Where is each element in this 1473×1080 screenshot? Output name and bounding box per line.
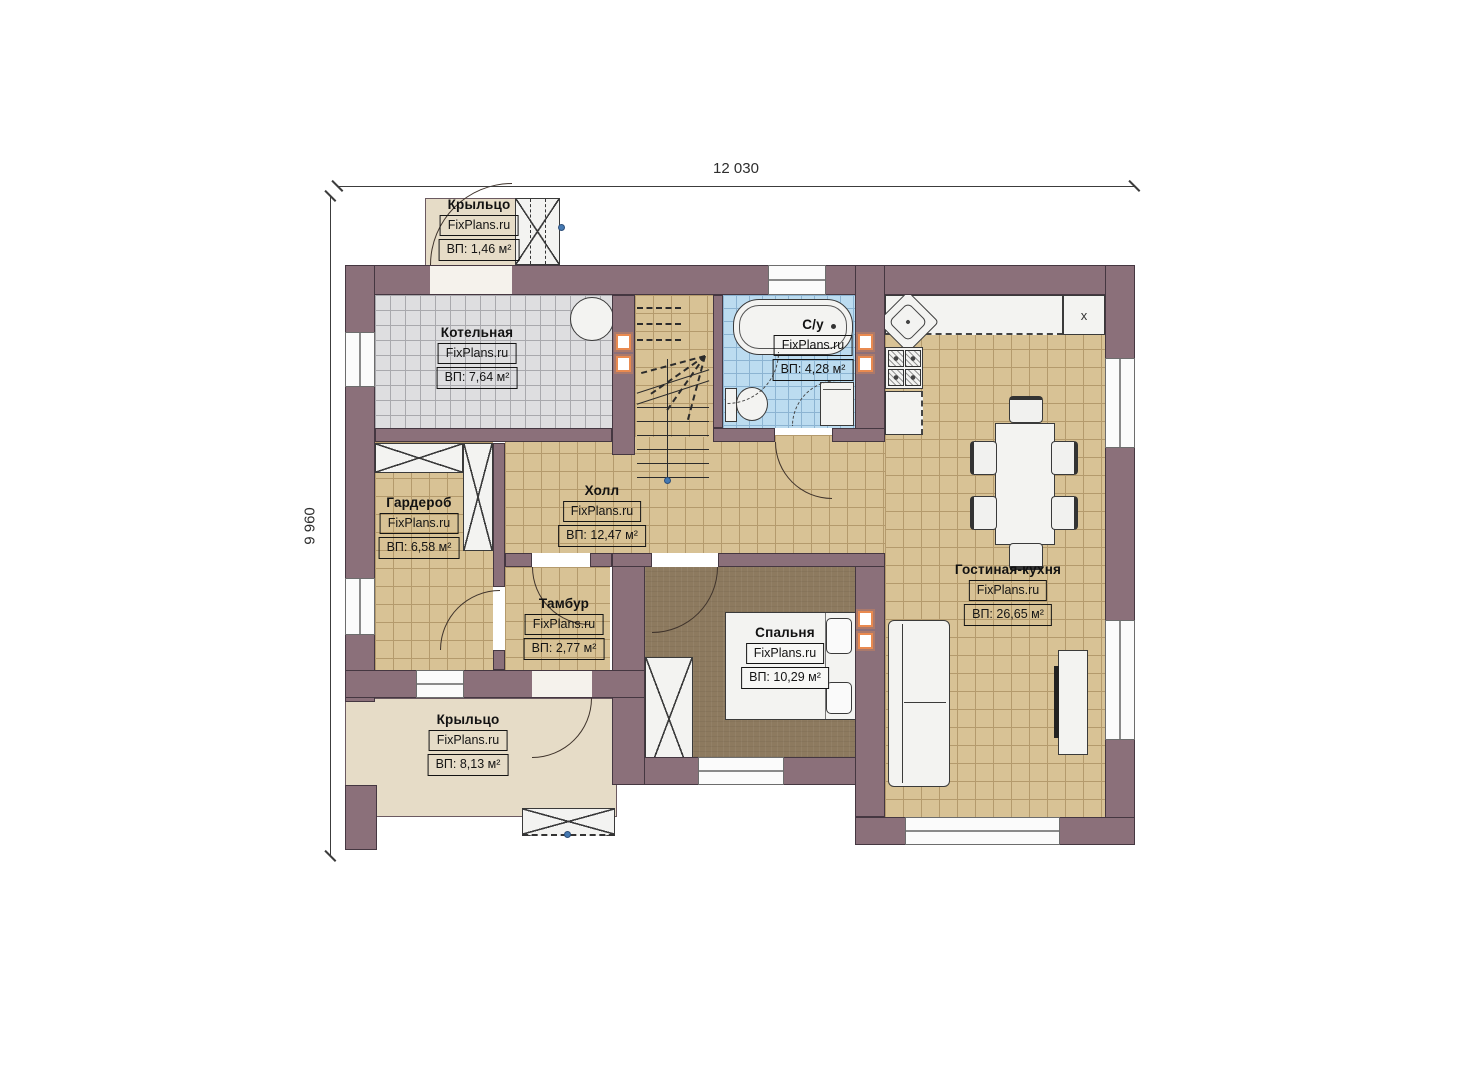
wall (612, 553, 652, 567)
wardrobe-cabinet (463, 443, 493, 551)
wardrobe-cabinet (375, 443, 463, 473)
room-label-boiler: Котельная FixPlans.ru ВП: 7,64 м² (437, 325, 518, 389)
wall (345, 265, 375, 702)
area-box: ВП: 10,29 м² (741, 667, 829, 688)
dining-table (995, 423, 1055, 545)
room-name: С/у (802, 317, 824, 332)
wall (713, 428, 775, 442)
window (905, 817, 1060, 845)
wall (612, 295, 635, 455)
watermark-box: FixPlans.ru (438, 343, 517, 364)
vent (616, 356, 631, 372)
watermark-box: FixPlans.ru (380, 513, 459, 534)
tv-stand (1058, 650, 1088, 755)
window (1105, 358, 1135, 448)
chair (1051, 441, 1078, 475)
watermark-box: FixPlans.ru (440, 215, 519, 236)
watermark-box: FixPlans.ru (969, 580, 1048, 601)
fridge: x (1063, 295, 1105, 335)
wall (612, 553, 645, 785)
boiler (570, 297, 614, 341)
wall (590, 553, 612, 567)
wall (493, 650, 505, 670)
stove (885, 347, 923, 389)
area-box: ВП: 8,13 м² (428, 754, 509, 775)
area-box: ВП: 26,65 м² (964, 604, 1052, 625)
vent (858, 334, 873, 350)
window (768, 265, 826, 295)
area-box: ВП: 7,64 м² (437, 367, 518, 388)
kitchen-counter-side (885, 391, 923, 435)
room-label-bedroom: Спальня FixPlans.ru ВП: 10,29 м² (741, 625, 829, 689)
watermark-box: FixPlans.ru (525, 614, 604, 635)
watermark-box: FixPlans.ru (563, 501, 642, 522)
door-opening (532, 671, 592, 697)
porch-top-steps (515, 198, 560, 265)
area-box: ВП: 6,58 м² (379, 537, 460, 558)
stair-marker-dot (664, 477, 671, 484)
vent (858, 611, 873, 627)
wall (832, 428, 885, 442)
dimension-left: 9 960 (300, 196, 334, 856)
chair (1051, 496, 1078, 530)
watermark-box: FixPlans.ru (774, 335, 853, 356)
vent (616, 334, 631, 350)
room-label-porch-bottom: Крыльцо FixPlans.ru ВП: 8,13 м² (428, 712, 509, 776)
watermark-box: FixPlans.ru (429, 730, 508, 751)
pillow (826, 682, 852, 714)
window (698, 757, 784, 785)
area-box: ВП: 12,47 м² (558, 525, 646, 546)
area-box: ВП: 2,77 м² (524, 638, 605, 659)
room-label-hall: Холл FixPlans.ru ВП: 12,47 м² (558, 483, 646, 547)
marker-dot (558, 224, 565, 231)
chair (1009, 396, 1043, 423)
wall (345, 670, 645, 698)
wall (713, 295, 723, 428)
vent (858, 356, 873, 372)
room-label-porch-top: Крыльцо FixPlans.ru ВП: 1,46 м² (439, 197, 520, 261)
sofa (888, 620, 950, 787)
wall (855, 265, 885, 442)
room-name: Холл (585, 483, 620, 498)
pillow (826, 618, 852, 654)
window (1105, 620, 1135, 740)
floor-plan: x (0, 0, 1473, 1080)
room-name: Гостиная-кухня (955, 562, 1061, 577)
dimension-label-width: 12 030 (713, 160, 759, 177)
room-name: Тамбур (539, 596, 589, 611)
room-name: Спальня (755, 625, 815, 640)
wall (855, 553, 885, 817)
dimension-top: 12 030 (337, 160, 1135, 190)
door-opening (430, 266, 512, 294)
chair (970, 441, 997, 475)
wall (718, 553, 885, 567)
watermark-box: FixPlans.ru (746, 643, 825, 664)
stairs (635, 295, 713, 490)
dimension-label-height: 9 960 (301, 507, 318, 545)
window (345, 578, 375, 635)
chair (970, 496, 997, 530)
wall (375, 428, 612, 442)
room-label-tambur: Тамбур FixPlans.ru ВП: 2,77 м² (524, 596, 605, 660)
vent (858, 633, 873, 649)
tv (1054, 666, 1059, 738)
window (345, 332, 375, 387)
wall (493, 443, 505, 587)
marker-dot (564, 831, 571, 838)
room-label-wardrobe: Гардероб FixPlans.ru ВП: 6,58 м² (379, 495, 460, 559)
room-label-living: Гостиная-кухня FixPlans.ru ВП: 26,65 м² (955, 562, 1061, 626)
fridge-marker: x (1081, 308, 1088, 323)
room-name: Крыльцо (437, 712, 500, 727)
room-label-bathroom: С/у FixPlans.ru ВП: 4,28 м² (773, 317, 854, 381)
area-box: ВП: 4,28 м² (773, 359, 854, 380)
wall (1105, 265, 1135, 845)
room-name: Крыльцо (448, 197, 511, 212)
room-name: Котельная (441, 325, 513, 340)
window (416, 670, 464, 698)
wall (505, 553, 532, 567)
wall (345, 785, 377, 850)
area-box: ВП: 1,46 м² (439, 239, 520, 260)
room-name: Гардероб (386, 495, 451, 510)
